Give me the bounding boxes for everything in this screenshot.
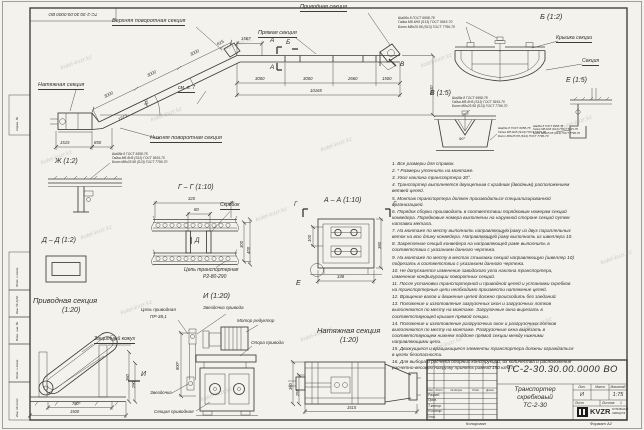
row-approved: Утв. (428, 416, 436, 419)
section-mark-a-bottom: А (270, 65, 274, 72)
frame-cell-label: Инв. № дубл. (16, 295, 19, 314)
detail-i-title: И (1:20) (203, 292, 230, 300)
doc-title-line1: Транспортер (497, 387, 573, 394)
row-tcontrol: Т.контр. (428, 405, 442, 408)
dim-400: 400 (247, 247, 251, 254)
section-mark-d: Д (195, 238, 200, 245)
row-checked: Пров. (428, 399, 437, 402)
section-mark-g-left: Г (294, 202, 297, 208)
label-protective-casing: Защитный кожух (94, 337, 135, 344)
note-item: 5. Монтаж транспортера должен производит… (392, 196, 574, 208)
label-tension-section: Натяжная секция (38, 83, 84, 90)
dim-850: 850 (94, 141, 101, 145)
label-drive-chain-2: ПР-38,1 (150, 315, 167, 320)
scale-header: Масштаб (609, 386, 627, 389)
bolt-spec: Шайба 8 ГОСТ 6958-78 Гайка М8-6Н5 (S13) … (112, 152, 167, 164)
dim-300: 300 (240, 241, 244, 248)
dim-800: 800* (176, 362, 180, 370)
spec-bolt: Болт М8х25.58 (S13) ГОСТ 7796-70 (398, 25, 455, 29)
kvzr-logo-icon (577, 407, 588, 417)
scale-value: 1:75 (609, 393, 627, 399)
dim-straight-2660: 2660 (348, 77, 358, 81)
note-item: 14. Положение и изготовление разгрузочны… (392, 321, 574, 345)
dim-80: 80 (194, 208, 199, 212)
view-mark-v: В (400, 62, 404, 69)
technical-notes: 1. Все размеры для справок. 2. * Размеры… (392, 161, 574, 373)
dim-320: 320 (188, 197, 195, 201)
frame-cell-label: Инв. № подл. (16, 398, 19, 417)
frame-cell-label: Подп. и дата (16, 268, 19, 287)
label-drive-section-part: Секция приводная (154, 410, 194, 415)
dim-1515-tension: 1515 (347, 406, 356, 410)
note-item: 15. Движущиеся и вращающиеся элементы тр… (392, 346, 574, 358)
dim-290-drive: 290 (132, 381, 136, 388)
drawing-sheet: kotel-kvzr.kz kotel-kvzr.kz kotel-kvzr.k… (0, 0, 644, 430)
dim-1515: 1515 (60, 141, 70, 145)
note-item: 7. На монтаже по месту выполнить направл… (392, 228, 574, 240)
detail-e-title: Е (1:5) (566, 77, 587, 84)
label-drive-sprocket: Звездочка привода (203, 306, 244, 311)
dim-total-10165: 10165 (310, 89, 322, 93)
dim-straight-3000: 3000 (255, 77, 265, 81)
label-drive-chain-1: Цепь приводная (141, 308, 176, 313)
note-item: 3. Угол наклона транспортера 30°. (392, 175, 574, 181)
dim-360: 360 (378, 242, 382, 249)
logo-sub2: ЗАВОД РФ (612, 413, 625, 416)
frame-cell-label: Справ. № (16, 117, 19, 131)
logo-text: KVZR (590, 408, 610, 416)
label-conveyor-chain-2: Р2-80-290 (203, 275, 226, 280)
note-item: 13. Положение и изготовление загрузочных… (392, 301, 574, 319)
section-mark-b: Б (286, 40, 290, 47)
spec-bolt: Болт М8х25.58 (S13) ГОСТ 7796-70 (452, 104, 507, 108)
detail-mark-i: И (141, 371, 146, 378)
lit-value: И (573, 393, 591, 399)
note-item: 11. После установки транспортерной и при… (392, 281, 574, 293)
dim-100: 100 (308, 235, 312, 242)
label-sprocket: Звездочка (150, 391, 172, 396)
frame-cell-label: Подп. и дата (16, 360, 19, 379)
detail-mark-e: Е (296, 280, 301, 287)
col-sheet: Лист (434, 389, 444, 392)
col-sign: Подп. (469, 389, 483, 392)
note-item: 10. Не допускается изменение заводского … (392, 268, 574, 280)
tension-section-scale: (1:20) (340, 337, 358, 344)
label-see-note-7: см. п. 7 (178, 86, 195, 93)
note-item: 9. На монтаже по месту в местах стыковки… (392, 255, 574, 267)
dim-360-tension: 360 (289, 383, 293, 390)
bolt-spec: Шайба 8 ГОСТ 6958-78 Гайка М8-6Н5 (S13) … (533, 125, 580, 135)
corner-stamp: ТС-2-30.30.00.0000 ВО (30, 8, 116, 21)
dim-360-drive: 360 (126, 374, 130, 381)
dim-angle-90: 90° (459, 137, 465, 141)
detail-zh-title: Ж (1:2) (55, 158, 78, 165)
dim-348: 348 (337, 275, 344, 279)
doc-title-line3: ТС-2-30 (497, 403, 573, 410)
bolt-spec: Шайба 8 ГОСТ 6958-78 Гайка М8-6Н5 (S13) … (398, 16, 455, 29)
detail-dd-title: Д – Д (1:2) (42, 237, 76, 244)
mass-header: Масса (591, 386, 609, 389)
label-motor-reducer: Мотор редуктор (237, 319, 275, 324)
frame-cell-label: Взам. инв. № (16, 322, 19, 341)
dim-780: 780* (72, 402, 80, 406)
detail-v-title: В (1:5) (430, 90, 451, 97)
label-conveyor-chain-1: Цепь транспортерная (184, 268, 238, 273)
sheets-count: 1 (620, 402, 622, 405)
row-developed: Разраб. (428, 394, 440, 397)
detail-b-title: Б (1:2) (540, 13, 562, 21)
bolt-spec: Шайба 8 ГОСТ 6958-78 Гайка М8-6Н5 (S13) … (452, 96, 507, 108)
drive-section-scale: (1:20) (62, 307, 80, 314)
label-upper-turn-section: Верхняя поворотная секция (112, 19, 185, 26)
spec-bolt: Болт М8х25.58 (S13) ГОСТ 7796-70 (533, 132, 580, 135)
sheets-label: Листов (602, 402, 614, 405)
sheet-label: Лист (575, 402, 584, 405)
section-mark-a-top: А (270, 38, 274, 45)
detail-gg-title: Г – Г (1:10) (178, 184, 214, 191)
dim-1567: 1567 (241, 37, 251, 41)
label-section: Секция (582, 59, 599, 66)
spec-nut: Гайка М8-6Н5 (S13) ГОСТ 5915-70 (398, 20, 455, 24)
doc-title-line2: скребковый (497, 395, 573, 402)
note-item: 8. Закрепление секций конвейера на напра… (392, 241, 574, 253)
dim-255-tension: 255 (296, 389, 300, 396)
note-item: 2. * Размеры уточнить на монтаже. (392, 168, 574, 174)
copied-label: Копировал (466, 422, 486, 426)
dim-1500-drive: 1500 (70, 410, 79, 414)
detail-aa-title: А – А (1:10) (324, 197, 361, 204)
dim-straight-1500: 1500 (382, 77, 392, 81)
label-straight-section: Прямая секция (258, 31, 297, 38)
note-item: 12. Вращение валов и движение цепей долж… (392, 294, 574, 300)
label-section-cover: Крышка секции (556, 36, 592, 43)
row-ncontrol: Н.контр. (428, 410, 442, 413)
label-lower-turn-section: Нижняя поворотная секция (150, 136, 222, 143)
note-item: 6. Порядок сборки производить в соответс… (392, 209, 574, 227)
doc-number: ТС-2-30.30.00.0000 ВО (497, 365, 627, 375)
col-date: Дата (483, 389, 497, 392)
label-drive-support: Опора привода (251, 341, 284, 346)
tension-section-title: Натяжная секция (317, 327, 380, 335)
format-label: Формат А2 (590, 422, 612, 426)
col-docnum: № докум. (444, 389, 469, 392)
note-item: 1. Все размеры для справок. (392, 161, 574, 167)
label-drive-section: Приводная секция (300, 5, 347, 12)
col-izm: Изм. (427, 389, 434, 392)
note-item: 4. Транспортер выполняется двухцепным с … (392, 182, 574, 194)
lit-header: Лит. (573, 386, 591, 389)
spec-bolt: Болт М8х25.58 (S13) ГОСТ 7796-70 (112, 160, 167, 164)
label-scraper: Скребок (220, 203, 240, 210)
drive-section-title: Приводная секция (33, 297, 97, 305)
dim-straight-3000: 3000 (303, 77, 313, 81)
